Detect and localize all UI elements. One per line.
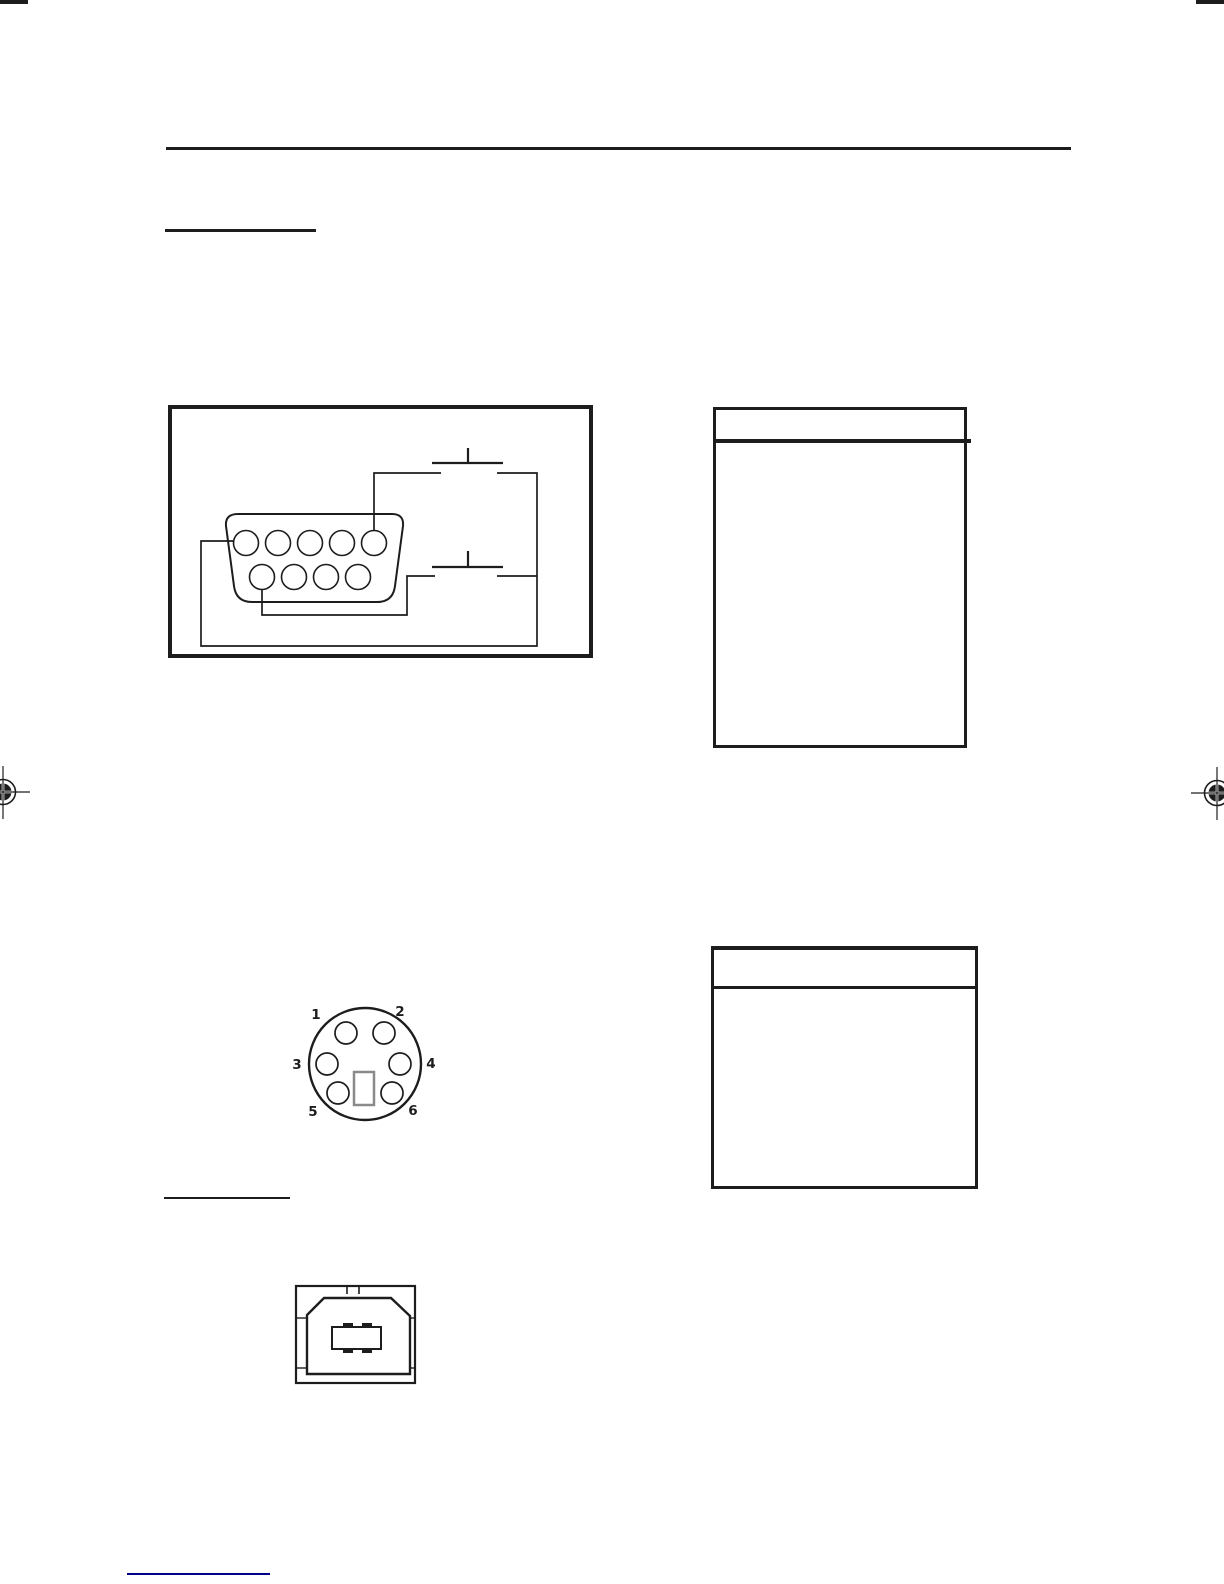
- footer-link-underline[interactable]: [127, 1573, 270, 1575]
- usb-side-ticks: [296, 1318, 415, 1368]
- din-pin-label-6: 6: [408, 1103, 417, 1119]
- usb-type-b-connector-figure: [293, 1283, 421, 1389]
- db9-pin-row-top: [234, 531, 387, 556]
- db9-pin: [250, 565, 275, 590]
- db9-pin: [330, 531, 355, 556]
- din-pin-label-2: 2: [395, 1004, 404, 1020]
- db9-pin-row-bottom: [250, 565, 371, 590]
- db9-pin: [282, 565, 307, 590]
- db9-pin: [346, 565, 371, 590]
- wire: [374, 473, 441, 531]
- din-pin-label-3: 3: [292, 1057, 301, 1073]
- mini-din-key-slot: [354, 1072, 374, 1105]
- db9-connector-outline: [226, 514, 403, 602]
- usb-top-notch: [347, 1286, 359, 1294]
- usb-inner-housing: [307, 1298, 410, 1374]
- registration-mark-right: [1190, 765, 1224, 823]
- serial-connector-wiring-figure: [164, 401, 598, 662]
- crop-mark-top-right: [1196, 0, 1224, 4]
- mini-din6-connector-figure: 1 2 3 4 5 6: [285, 1000, 445, 1126]
- header-rule: [166, 147, 1071, 150]
- din-pin-3: [316, 1053, 338, 1075]
- db9-pin: [266, 531, 291, 556]
- heading-underline-serial: [165, 229, 316, 232]
- din-pin-1: [335, 1022, 357, 1044]
- din-pin-6: [381, 1082, 403, 1104]
- heading-underline-usb: [164, 1197, 290, 1199]
- usb-outer-shell: [296, 1286, 415, 1383]
- switch-symbol: [432, 551, 503, 567]
- wire: [201, 473, 537, 646]
- serial-pin-table: [713, 407, 967, 748]
- usb-contact-block: [332, 1327, 381, 1349]
- din-pin-5: [327, 1082, 349, 1104]
- din-pin-label-4: 4: [426, 1056, 435, 1072]
- din-pin-label-1: 1: [311, 1007, 320, 1023]
- din-pin-4: [389, 1053, 411, 1075]
- wire: [262, 576, 435, 615]
- mini-din-pin-table-header-separator: [711, 986, 978, 989]
- din-pin-2: [373, 1022, 395, 1044]
- mini-din-pin-table: [711, 946, 978, 1189]
- crop-mark-top-left: [0, 0, 28, 4]
- db9-pin: [314, 565, 339, 590]
- switch-symbol: [432, 448, 503, 463]
- db9-pin: [298, 531, 323, 556]
- serial-pin-table-header-separator: [713, 439, 971, 443]
- registration-mark-left: [0, 764, 32, 822]
- circuit-wires: [201, 473, 537, 646]
- document-page: 1 2 3 4 5 6: [0, 0, 1224, 1584]
- din-pin-label-5: 5: [308, 1104, 317, 1120]
- db9-pin: [362, 531, 387, 556]
- db9-pin: [234, 531, 259, 556]
- switch-symbols: [432, 448, 503, 567]
